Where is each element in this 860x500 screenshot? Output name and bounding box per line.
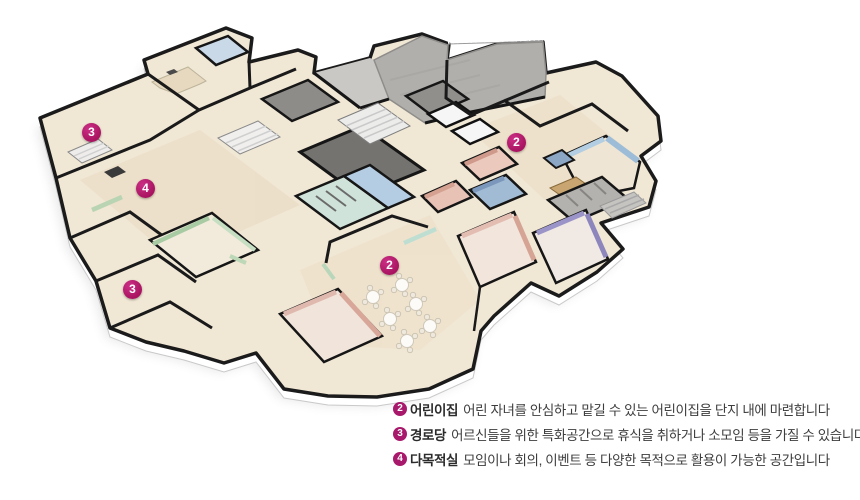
plan-marker-senior-lounge: 3 [82,123,101,142]
community-floorplan-page: 3 4 3 2 2 2 어린이집 어린 자녀를 안심하고 맡길 수 있는 어린이… [0,0,860,500]
legend-number-badge: 2 [393,402,407,416]
legend-item-multipurpose-room: 4 다목적실 모임이나 회의, 이벤트 등 다양한 목적으로 활용이 가능한 공… [393,446,860,471]
legend-item-daycare: 2 어린이집 어린 자녀를 안심하고 맡길 수 있는 어린이집을 단지 내에 마… [393,396,860,421]
legend: 2 어린이집 어린 자녀를 안심하고 맡길 수 있는 어린이집을 단지 내에 마… [393,396,860,471]
plan-marker-daycare-2: 2 [380,256,399,275]
legend-item-senior-lounge: 3 경로당 어르신들을 위한 특화공간으로 휴식을 취하거나 소모임 등을 가질… [393,421,860,446]
legend-item-label: 다목적실 [410,449,458,469]
plan-marker-daycare: 2 [507,133,526,152]
legend-item-text: 어르신들을 위한 특화공간으로 휴식을 취하거나 소모임 등을 가질 수 있습니… [451,424,860,444]
plan-marker-senior-lounge-2: 3 [123,280,142,299]
legend-number-badge: 3 [393,427,407,441]
legend-item-label: 어린이집 [410,399,458,419]
legend-number-badge: 4 [393,452,407,466]
legend-item-label: 경로당 [410,424,446,444]
legend-item-text: 모임이나 회의, 이벤트 등 다양한 목적으로 활용이 가능한 공간입니다 [463,449,830,469]
legend-item-text: 어린 자녀를 안심하고 맡길 수 있는 어린이집을 단지 내에 마련합니다 [463,399,830,419]
plan-marker-multipurpose-room: 4 [136,179,155,198]
